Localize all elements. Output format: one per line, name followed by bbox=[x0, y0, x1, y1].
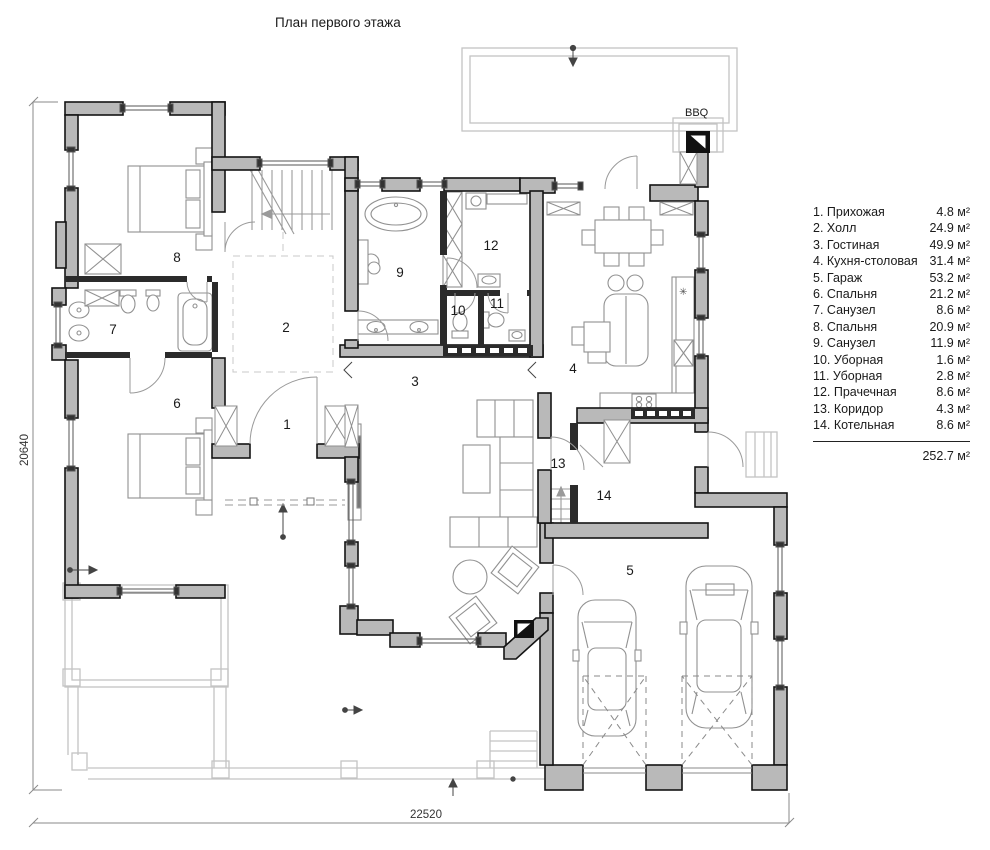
page-title: План первого этажа bbox=[275, 15, 401, 30]
window-icon bbox=[355, 180, 385, 188]
exterior-steps-south bbox=[490, 731, 537, 768]
door-icon bbox=[605, 156, 637, 189]
legend-row: 14. Котельная8.6 м² bbox=[813, 417, 970, 433]
laundry-basket-icon bbox=[85, 290, 119, 306]
pouf-icon bbox=[453, 560, 487, 594]
dining-table-icon bbox=[582, 207, 663, 266]
window-icon bbox=[347, 563, 355, 609]
legend-room-area: 31.4 м² bbox=[929, 253, 970, 269]
legend-total: 252.7 м² bbox=[813, 448, 970, 464]
legend-room-area: 21.2 м² bbox=[929, 286, 970, 302]
legend-room-area: 4.3 м² bbox=[936, 401, 970, 417]
window-icon bbox=[417, 180, 447, 188]
closet-column-icon bbox=[604, 420, 630, 463]
legend-room-name: 9. Санузел bbox=[813, 335, 876, 351]
sink-icon bbox=[69, 302, 89, 341]
dim-width-label: 22520 bbox=[410, 809, 442, 821]
bathtub-oval-icon bbox=[365, 197, 427, 231]
room-number: 9 bbox=[396, 265, 404, 280]
legend-room-area: 8.6 м² bbox=[936, 384, 970, 400]
legend-room-name: 8. Спальня bbox=[813, 319, 877, 335]
wardrobe-icon bbox=[85, 244, 121, 274]
car-icon bbox=[573, 600, 641, 736]
window-icon bbox=[697, 315, 705, 359]
room-number: 2 bbox=[282, 320, 290, 335]
legend-row: 12. Прачечная8.6 м² bbox=[813, 384, 970, 400]
legend-row: 6. Спальня21.2 м² bbox=[813, 286, 970, 302]
floor-plan-page: План первого этажа BBQ 20640 22520 ✳ 1 2… bbox=[0, 0, 990, 850]
closet-column-icon bbox=[660, 202, 693, 215]
legend-row: 8. Спальня20.9 м² bbox=[813, 319, 970, 335]
door-icon bbox=[553, 565, 583, 595]
window-icon bbox=[120, 104, 173, 112]
legend-room-name: 2. Холл bbox=[813, 220, 856, 236]
legend-divider bbox=[813, 441, 970, 442]
stairs-icon bbox=[248, 166, 332, 234]
sink-symbol: ✳ bbox=[679, 287, 687, 298]
room-number: 5 bbox=[626, 563, 634, 578]
door-icon bbox=[708, 432, 743, 467]
room-number: 4 bbox=[569, 361, 577, 376]
door-icon bbox=[250, 377, 317, 444]
window-icon bbox=[54, 302, 62, 348]
legend-room-area: 11.9 м² bbox=[930, 335, 970, 351]
fireplace-icon bbox=[514, 620, 534, 638]
legend-row: 13. Коридор4.3 м² bbox=[813, 401, 970, 417]
legend-row: 2. Холл24.9 м² bbox=[813, 220, 970, 236]
coffee-table-icon bbox=[463, 445, 490, 493]
window-icon bbox=[776, 542, 784, 596]
room-number: 8 bbox=[173, 250, 181, 265]
legend-room-name: 13. Коридор bbox=[813, 401, 883, 417]
dim-height-label: 20640 bbox=[19, 434, 31, 466]
dashed-guides bbox=[233, 232, 333, 372]
window-icon bbox=[257, 159, 333, 167]
room-number: 14 bbox=[596, 488, 612, 503]
legend-room-name: 1. Прихожая bbox=[813, 204, 885, 220]
legend-room-name: 11. Уборная bbox=[813, 368, 882, 384]
legend-room-name: 10. Уборная bbox=[813, 352, 883, 368]
legend-room-name: 5. Гараж bbox=[813, 270, 862, 286]
stove-icon bbox=[632, 394, 656, 409]
kitchen-island-icon bbox=[572, 275, 648, 366]
legend-room-area: 49.9 м² bbox=[929, 237, 970, 253]
legend-room-area: 53.2 м² bbox=[929, 270, 970, 286]
legend-row: 7. Санузел8.6 м² bbox=[813, 302, 970, 318]
legend-room-name: 12. Прачечная bbox=[813, 384, 897, 400]
legend-row: 1. Прихожая4.8 м² bbox=[813, 204, 970, 220]
window-icon bbox=[776, 636, 784, 690]
legend-row: 11. Уборная2.8 м² bbox=[813, 368, 970, 384]
room-number: 12 bbox=[483, 238, 498, 253]
legend-room-area: 20.9 м² bbox=[929, 319, 970, 335]
legend-row: 10. Уборная1.6 м² bbox=[813, 352, 970, 368]
legend-rows: 1. Прихожая4.8 м²2. Холл24.9 м²3. Гостин… bbox=[813, 204, 970, 434]
bed-icon bbox=[128, 418, 212, 515]
legend: 1. Прихожая4.8 м²2. Холл24.9 м²3. Гостин… bbox=[813, 204, 970, 464]
legend-room-area: 4.8 м² bbox=[936, 204, 970, 220]
legend-row: 9. Санузел11.9 м² bbox=[813, 335, 970, 351]
vanity-desk-icon bbox=[357, 240, 380, 284]
legend-row: 4. Кухня-столовая31.4 м² bbox=[813, 253, 970, 269]
room-number: 13 bbox=[550, 456, 565, 471]
legend-room-name: 3. Гостиная bbox=[813, 237, 879, 253]
door-icon bbox=[225, 222, 255, 252]
closet-column-icon bbox=[680, 152, 697, 184]
legend-room-area: 1.6 м² bbox=[936, 352, 970, 368]
window-icon bbox=[552, 182, 583, 190]
porch-steps-east bbox=[746, 432, 777, 477]
room-number: 11 bbox=[490, 296, 504, 311]
room-number: 7 bbox=[109, 322, 117, 337]
room-number: 10 bbox=[450, 303, 465, 318]
window-icon bbox=[67, 147, 75, 191]
door-icon bbox=[130, 358, 165, 393]
legend-room-name: 4. Кухня-столовая bbox=[813, 253, 918, 269]
legend-room-name: 7. Санузел bbox=[813, 302, 876, 318]
closet-column-icon bbox=[345, 405, 358, 447]
legend-room-name: 6. Спальня bbox=[813, 286, 877, 302]
legend-room-area: 2.8 м² bbox=[936, 368, 970, 384]
legend-room-name: 14. Котельная bbox=[813, 417, 894, 433]
window-icon bbox=[67, 415, 75, 471]
bbq-label: BBQ bbox=[685, 107, 709, 119]
vanity-sinks-icon bbox=[358, 320, 438, 334]
legend-room-area: 8.6 м² bbox=[936, 302, 970, 318]
bed-icon bbox=[128, 148, 212, 250]
legend-row: 3. Гостиная49.9 м² bbox=[813, 237, 970, 253]
car-icon bbox=[680, 566, 758, 728]
window-icon bbox=[697, 232, 705, 273]
toilet-icon bbox=[120, 290, 160, 313]
chimney-bbq-icon bbox=[686, 131, 710, 153]
closet-column-icon bbox=[215, 406, 237, 446]
room-number: 1 bbox=[283, 417, 291, 432]
window-icon bbox=[117, 587, 179, 595]
legend-room-area: 8.6 м² bbox=[936, 417, 970, 433]
legend-room-area: 24.9 м² bbox=[929, 220, 970, 236]
room-number: 3 bbox=[411, 374, 419, 389]
closet-column-icon bbox=[547, 202, 580, 215]
room-number: 6 bbox=[173, 396, 181, 411]
legend-row: 5. Гараж53.2 м² bbox=[813, 270, 970, 286]
